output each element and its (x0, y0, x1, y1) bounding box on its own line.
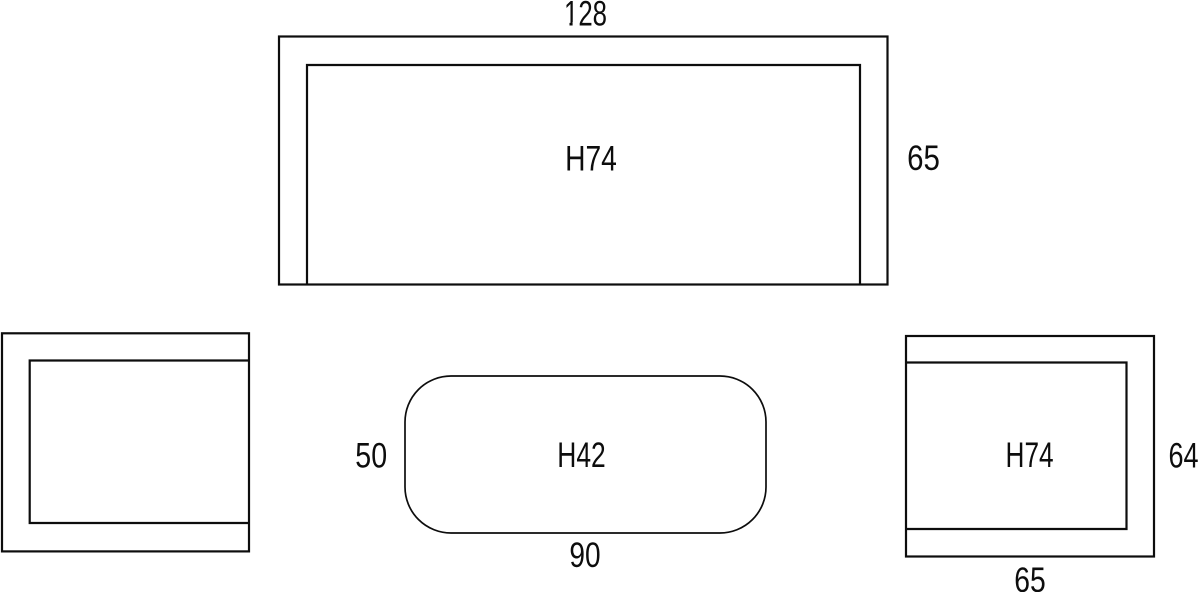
svg-text:H74: H74 (1006, 436, 1054, 475)
svg-text:H74: H74 (565, 139, 617, 178)
svg-text:65: 65 (907, 139, 940, 178)
svg-text:90: 90 (569, 536, 600, 575)
svg-text:H42: H42 (557, 436, 606, 475)
svg-text:64: 64 (1168, 437, 1198, 476)
svg-text:65: 65 (1014, 561, 1046, 592)
svg-text:128: 128 (564, 0, 607, 33)
svg-text:50: 50 (355, 437, 387, 476)
